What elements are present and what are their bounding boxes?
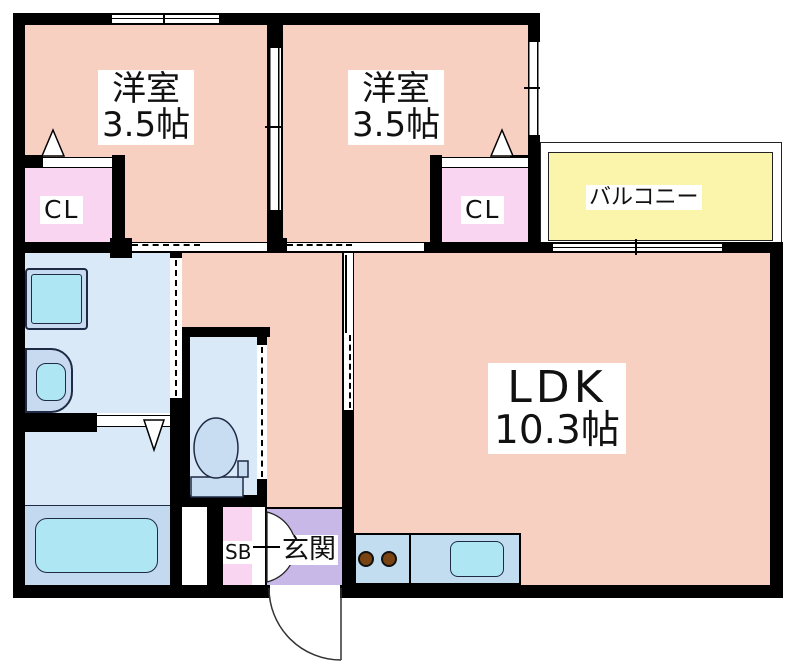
front-door-arc xyxy=(265,584,347,666)
balcony-label: バルコニー xyxy=(586,185,702,210)
bedroom1-label: 洋室 3.5帖 xyxy=(98,70,194,145)
bedroom1-type: 洋室 xyxy=(102,72,190,108)
kitchen-counter-divider xyxy=(409,533,411,585)
slider-bedroom1-dash xyxy=(132,244,200,246)
closet2-door-triangle xyxy=(489,128,515,158)
door-ldk-panel xyxy=(345,255,347,333)
washbasin-bowl xyxy=(36,363,66,401)
wall-south-band-right xyxy=(722,242,783,253)
ldk-label: LDK 10.3帖 xyxy=(488,363,626,454)
slider-partition-tick xyxy=(265,126,281,128)
washing-machine xyxy=(31,274,82,324)
window-top xyxy=(112,13,219,25)
door-ldk-dash xyxy=(349,335,351,408)
stove-burner-1 xyxy=(358,551,374,567)
slider-bedroom2-dash xyxy=(287,244,352,246)
closet1-track xyxy=(43,157,112,168)
closet1-door-triangle xyxy=(40,128,66,158)
bedroom2-size: 3.5帖 xyxy=(352,108,440,144)
wall-closet2-left xyxy=(430,155,442,242)
closet2-label: CL xyxy=(461,196,504,224)
toilet xyxy=(185,412,255,500)
door-toilet-dash xyxy=(261,347,263,477)
wall-bottom xyxy=(13,585,783,598)
closet2-track xyxy=(442,157,528,168)
wall-post-a xyxy=(110,238,132,258)
slider-partition xyxy=(269,48,281,210)
shoebox-label: SB xyxy=(223,541,253,564)
ldk-type: LDK xyxy=(494,365,620,411)
wall-hall-block xyxy=(207,507,223,585)
floorplan: 洋室 3.5帖 洋室 3.5帖 LDK 10.3帖 CL CL バルコニー 玄関… xyxy=(0,0,800,667)
bathtub xyxy=(35,518,158,573)
kitchen-sink xyxy=(450,541,504,577)
window-balcony xyxy=(553,242,722,253)
window-bedroom2-tick xyxy=(524,87,540,89)
hall-strip xyxy=(182,507,207,585)
wall-south-band-mid xyxy=(424,242,553,253)
ldk-size: 10.3帖 xyxy=(494,411,620,452)
window-top-tick xyxy=(163,14,165,24)
wall-post-b xyxy=(267,238,287,253)
wall-left xyxy=(13,13,25,598)
bath-door-triangle xyxy=(142,418,166,452)
wall-closet1-right xyxy=(112,155,125,242)
window-balcony-tick xyxy=(635,239,637,255)
wall-ldk-right xyxy=(770,253,783,598)
entrance-label: 玄関 xyxy=(280,535,338,565)
door-washroom-dash xyxy=(175,260,177,396)
bedroom1-size: 3.5帖 xyxy=(102,108,190,144)
wall-bath-divider xyxy=(13,413,97,432)
stove-burner-2 xyxy=(381,551,397,567)
bedroom2-label: 洋室 3.5帖 xyxy=(348,70,444,145)
closet1-label: CL xyxy=(40,196,83,224)
bedroom2-type: 洋室 xyxy=(352,72,440,108)
